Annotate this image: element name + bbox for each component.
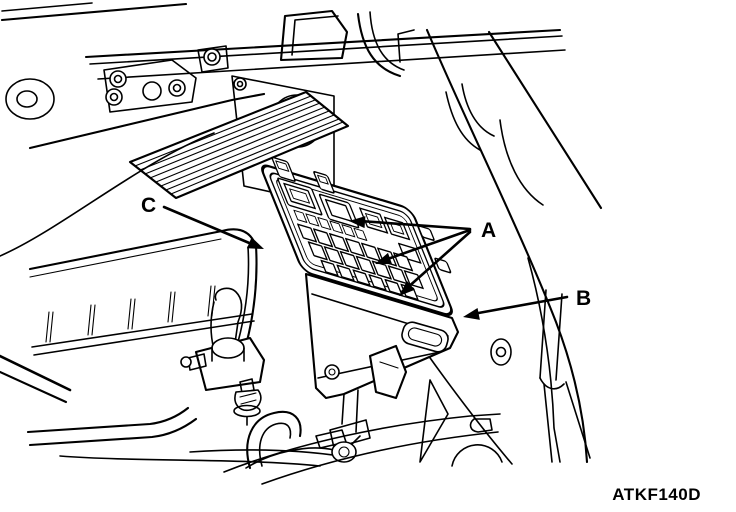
callout-a-label: A	[481, 219, 496, 242]
callout-b-label: B	[576, 287, 591, 310]
callout-c-label: C	[141, 194, 156, 217]
line-drawing: C A B ATKF140D	[0, 0, 736, 512]
figure-code: ATKF140D	[612, 485, 701, 504]
cover-pins	[46, 286, 215, 342]
relay-box	[255, 152, 471, 448]
battery-terminal	[181, 288, 301, 468]
engine-room-relay-box-illustration: C A B ATKF140D	[0, 0, 736, 512]
hoses-and-tray	[0, 356, 360, 468]
